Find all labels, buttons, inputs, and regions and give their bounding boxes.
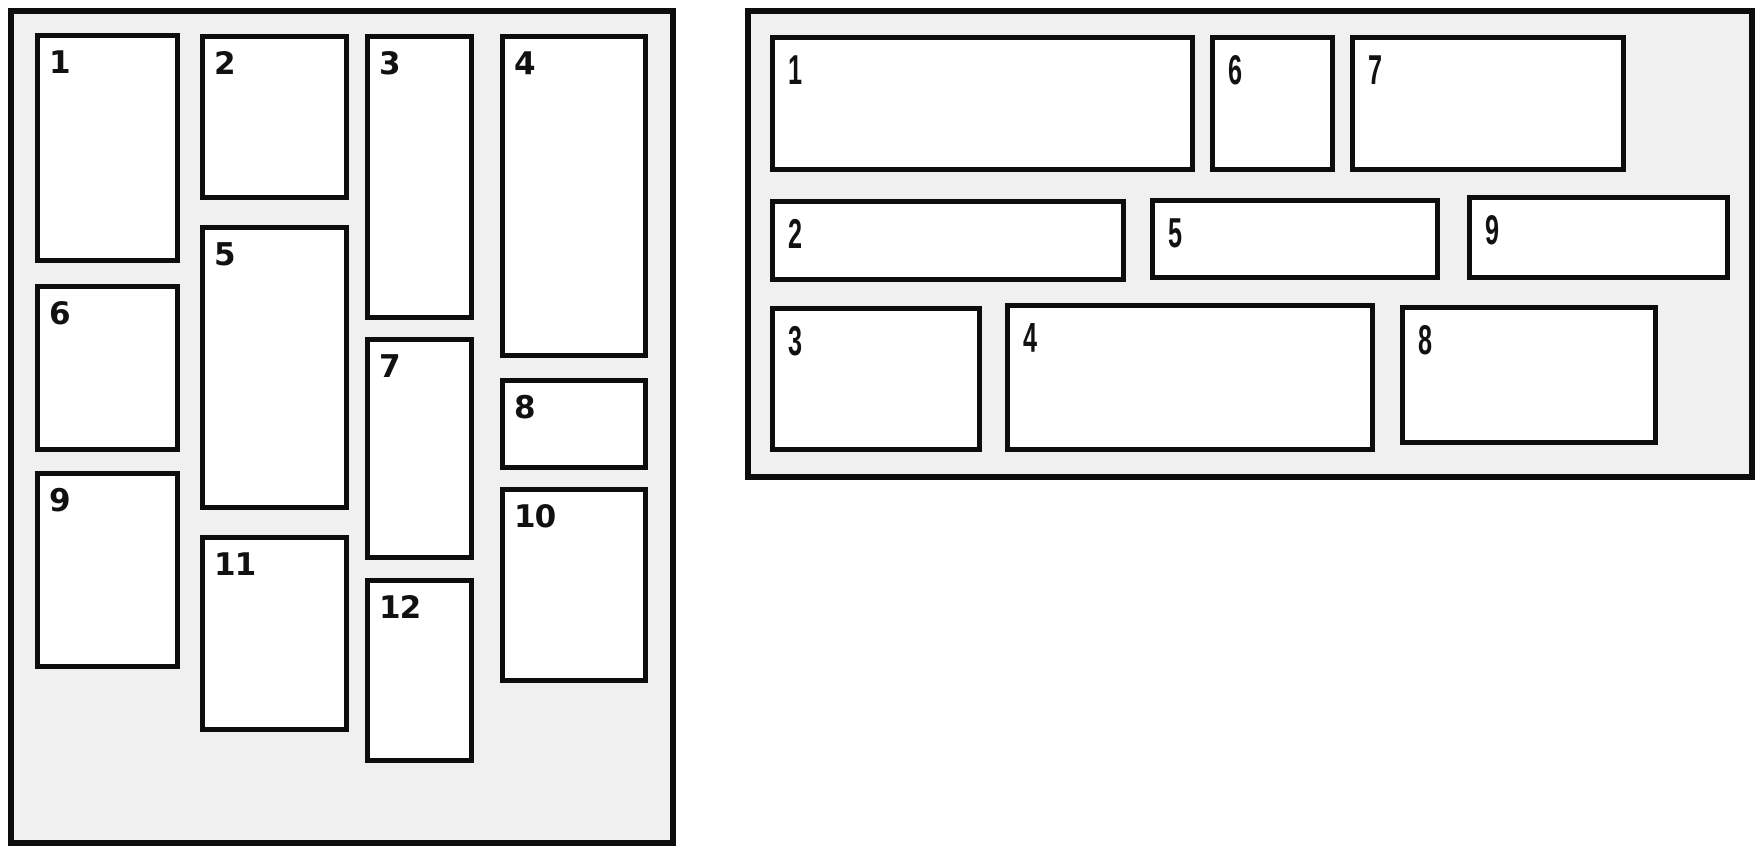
- box-number-label: 8: [514, 391, 535, 425]
- left-masonry-panel-box-2: 2: [200, 34, 349, 200]
- box-number-label: 6: [1228, 49, 1242, 91]
- box-number-label: 8: [1418, 319, 1432, 361]
- box-number-label: 5: [214, 238, 235, 272]
- left-masonry-panel-box-8: 8: [500, 378, 648, 470]
- box-number-label: 1: [49, 46, 70, 80]
- wireframe-canvas: 123456789101112167259348: [0, 0, 1755, 852]
- box-number-label: 7: [379, 350, 400, 384]
- right-masonry-panel-box-8: 8: [1400, 305, 1658, 445]
- box-number-label: 7: [1368, 49, 1382, 91]
- box-number-label: 2: [214, 47, 235, 81]
- box-number-label: 10: [514, 500, 555, 534]
- box-number-label: 1: [788, 49, 802, 91]
- right-masonry-panel-box-3: 3: [770, 306, 982, 452]
- right-masonry-panel-box-5: 5: [1150, 198, 1440, 280]
- left-masonry-panel-box-4: 4: [500, 34, 648, 358]
- box-number-label: 3: [788, 320, 802, 362]
- right-masonry-panel-box-4: 4: [1005, 303, 1375, 452]
- box-number-label: 9: [1485, 209, 1499, 251]
- box-number-label: 6: [49, 297, 70, 331]
- right-masonry-panel-box-6: 6: [1210, 35, 1335, 172]
- right-masonry-panel-box-2: 2: [770, 199, 1126, 282]
- box-number-label: 4: [1023, 317, 1037, 359]
- right-masonry-panel-box-7: 7: [1350, 35, 1626, 172]
- box-number-label: 2: [788, 213, 802, 255]
- left-masonry-panel-box-3: 3: [365, 34, 474, 320]
- left-masonry-panel-box-5: 5: [200, 225, 349, 510]
- left-masonry-panel-box-11: 11: [200, 535, 349, 732]
- left-masonry-panel: 123456789101112: [8, 8, 676, 846]
- right-masonry-panel: 167259348: [745, 8, 1755, 480]
- left-masonry-panel-box-9: 9: [35, 471, 180, 669]
- left-masonry-panel-box-12: 12: [365, 578, 474, 763]
- box-number-label: 9: [49, 484, 70, 518]
- right-masonry-panel-box-9: 9: [1467, 195, 1730, 280]
- box-number-label: 12: [379, 591, 420, 625]
- left-masonry-panel-box-10: 10: [500, 487, 648, 683]
- box-number-label: 4: [514, 47, 535, 81]
- box-number-label: 11: [214, 548, 255, 582]
- box-number-label: 5: [1168, 212, 1182, 254]
- left-masonry-panel-box-6: 6: [35, 284, 180, 452]
- box-number-label: 3: [379, 47, 400, 81]
- left-masonry-panel-box-1: 1: [35, 33, 180, 263]
- left-masonry-panel-box-7: 7: [365, 337, 474, 560]
- right-masonry-panel-box-1: 1: [770, 35, 1195, 172]
